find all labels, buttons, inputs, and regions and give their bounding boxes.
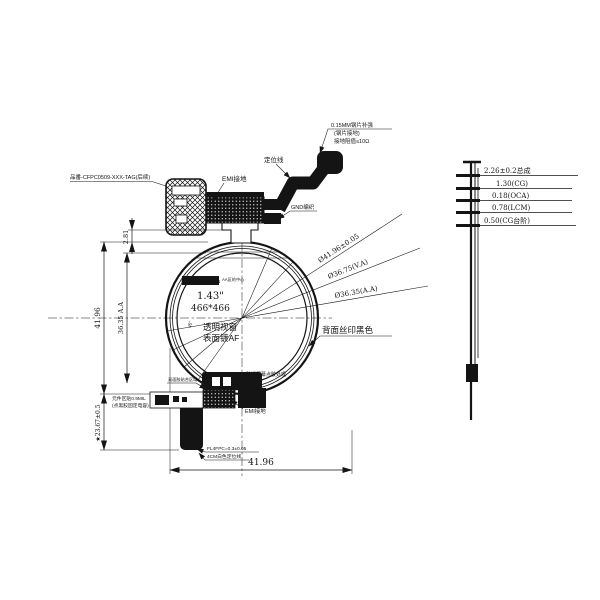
dim-aa-height-label: 36.35 A.A: [117, 302, 125, 334]
dim-width-label: 41.96: [248, 458, 274, 468]
positioning-line-label: 定位线: [264, 155, 284, 164]
tail-solid-block: [238, 388, 266, 408]
fpc-note-line2: 4CM白色定位线: [207, 453, 241, 460]
dim-height-label: 41.96: [93, 307, 102, 329]
stiffener-note-line2: (钢片接地): [334, 129, 360, 137]
engineering-drawing: 品番-CFPC0509-XXX-TAG(后续) 0.15MM钢片补强 (钢片接地…: [0, 0, 600, 600]
dimension-lines: [104, 218, 352, 470]
panel-size-label: 1.43": [197, 291, 224, 302]
drawing-canvas: 品番-CFPC0509-XXX-TAG(后续) 0.15MM钢片补强 (钢片接地…: [0, 0, 600, 600]
dim-tail-label: ★23.67±0.5: [95, 404, 102, 441]
layer-label-cg: 1.30(CG): [496, 180, 528, 188]
fpc-cable: [279, 167, 325, 209]
layer-label-step: 0.50(CG台阶): [484, 216, 530, 225]
side-view: [456, 162, 578, 420]
side-view-connector: [466, 364, 478, 382]
dia-va-label: Ø36.75(V.A): [327, 258, 370, 281]
top-fpc-assembly: [166, 151, 343, 243]
scan-direction-label: SCAN DIRECTION: [181, 279, 220, 284]
stiffener-end-cap: [317, 151, 343, 174]
dim-top-label: 2.81: [122, 230, 130, 244]
component-note-line1: 元件区贴0.9MIL: [112, 395, 146, 402]
glue-note-label: 贴近屏幕点胶处理: [246, 371, 286, 378]
fan-angle-label: 45°: [187, 320, 193, 328]
dia-aa-label: Ø36.35(A.A): [334, 284, 379, 299]
gnd-braid-label: GND编织: [291, 203, 315, 211]
stiffener-note-line3: 接地阻值≤10Ω: [334, 137, 369, 145]
emi-ground-top-label: EMI接地: [222, 174, 247, 183]
component-note-line2: (点黑胶固定电容): [112, 402, 149, 409]
emi-band-top-strip: [206, 192, 264, 197]
resolution-label: 466*466: [191, 304, 230, 314]
layer-label-total: 2.26±0.2总成: [484, 166, 531, 175]
aa-center-note: AA区的中心: [222, 276, 245, 283]
part-number-label: 品番-CFPC0509-XXX-TAG(后续): [70, 173, 150, 181]
back-print-label: 背面丝印黑色: [322, 325, 374, 335]
extension-lines: [100, 230, 352, 474]
dia-outline-label: Ø41.96±0.05: [317, 232, 361, 264]
emi-ground-bottom-label: EMI接地: [245, 407, 266, 415]
annotations: 品番-CFPC0509-XXX-TAG(后续) 0.15MM钢片补强 (钢片接地…: [70, 121, 531, 468]
window-note-line1: 透明视窗: [203, 322, 237, 332]
layer-label-oca: 0.18(OCA): [492, 192, 529, 200]
window-note-line2: 表面镀AF: [203, 333, 239, 343]
top-neck: [222, 223, 258, 243]
tail-emi-block: [203, 390, 235, 408]
stiffener-note-line1: 0.15MM钢片补强: [331, 121, 373, 129]
fpc-note-line1: FL4FPC=0.3±0.05: [207, 446, 247, 452]
layer-ticks: [456, 176, 480, 226]
tape-note-label: 双面胶贴合区域: [168, 376, 198, 383]
tail-end-cap: [180, 438, 203, 450]
layer-label-lcm: 0.78(LCM): [492, 204, 530, 212]
emi-shield-band: [206, 197, 264, 223]
